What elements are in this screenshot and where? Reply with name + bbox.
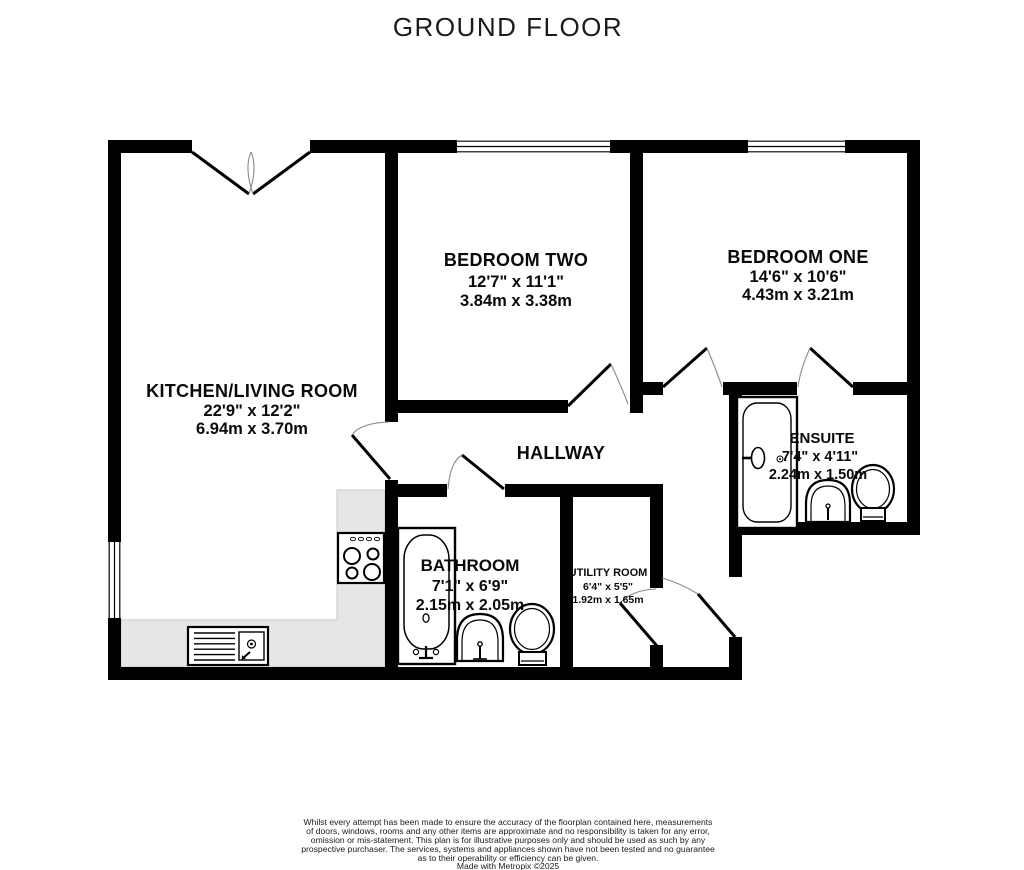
wall [853, 382, 907, 395]
bedroom-one-door [663, 348, 722, 387]
sink-icon [457, 614, 503, 661]
wall [729, 637, 742, 667]
bathroom-door [448, 455, 504, 489]
floorplan-drawing: GROUND FLOOR [0, 0, 1024, 870]
room-label-bedroom-two: BEDROOM TWO [444, 250, 588, 270]
window [108, 542, 121, 618]
hob-burner [364, 564, 380, 580]
room-dims-imperial: 22'9" x 12'2" [204, 402, 301, 420]
room-dims-metric: 2.15m x 2.05m [416, 597, 525, 614]
door-swing-arc [352, 422, 389, 435]
bathtub-icon [398, 528, 455, 664]
door-leaf [352, 435, 390, 479]
door-leaf [810, 348, 853, 387]
door-swing-arc [707, 348, 722, 387]
french-doors [192, 152, 310, 194]
room-dims-imperial: 6'4" x 5'5" [583, 581, 633, 593]
room-dims-metric: 6.94m x 3.70m [196, 420, 308, 438]
room-dims-metric: 1.92m x 1.65m [572, 594, 643, 606]
hob-burner [344, 548, 360, 564]
door-swing-arc [798, 348, 810, 387]
window [457, 140, 610, 153]
room-dims-metric: 4.43m x 3.21m [742, 286, 854, 304]
door-leaf [663, 348, 707, 387]
floorplan-page: GROUND FLOOR [0, 0, 1024, 870]
bedroom-two-door [568, 364, 628, 406]
door-leaf [698, 594, 735, 637]
hob-icon [338, 533, 384, 583]
wall [643, 382, 663, 395]
hob-burner [368, 549, 379, 560]
wall [385, 480, 398, 667]
hob-burner [347, 568, 358, 579]
room-label-ensuite: ENSUITE [789, 430, 854, 447]
door-leaf [568, 364, 611, 406]
wall [385, 153, 398, 422]
sink-icon [806, 480, 850, 522]
footer-disclaimer: Whilst every attempt has been made to en… [301, 817, 715, 870]
room-label-bedroom-one: BEDROOM ONE [727, 247, 868, 267]
door-leaf [192, 152, 249, 194]
door-leaf [462, 455, 504, 489]
wall [310, 140, 457, 153]
wall [729, 535, 742, 577]
toilet-cistern [861, 508, 885, 521]
kitchen-door [352, 422, 390, 479]
entrance-door [662, 578, 735, 637]
ensuite-door [798, 348, 853, 387]
shower-head [752, 448, 765, 469]
toilet-cistern [519, 652, 546, 665]
room-label-kitchen-living: KITCHEN/LIVING ROOM [146, 381, 358, 401]
door-swing-arc [448, 455, 462, 489]
disclaimer-credit: Made with Metropix ©2025 [457, 861, 560, 870]
wall [108, 667, 742, 680]
wall [610, 140, 748, 153]
door-swing-arc [662, 578, 698, 594]
door-leaf [253, 152, 310, 194]
room-dims-imperial: 7'1" x 6'9" [432, 578, 508, 595]
room-dims-imperial: 7'4" x 4'11" [782, 449, 858, 465]
room-dims-imperial: 14'6" x 10'6" [750, 268, 847, 286]
door-swing-arc [611, 364, 628, 404]
room-dims-metric: 2.24m x 1.50m [769, 467, 867, 483]
wall [630, 400, 643, 413]
room-label-hallway: HALLWAY [517, 443, 605, 463]
room-label-bathroom: BATHROOM [421, 556, 520, 575]
wall [650, 645, 663, 667]
shower-drain-dot [779, 458, 781, 460]
wall [393, 400, 568, 413]
door-leaf [620, 603, 657, 646]
window [748, 140, 845, 153]
wall [907, 140, 920, 535]
kitchen-sink-icon [188, 627, 268, 665]
bath-tap-knob [413, 649, 418, 654]
bath-tap-knob [433, 649, 438, 654]
wall [560, 497, 573, 667]
sink-drain-dot [250, 643, 253, 646]
room-label-utility: UTILITY ROOM [569, 567, 648, 579]
wall [108, 140, 121, 542]
wall [650, 497, 663, 588]
door-swing-arc [248, 152, 253, 194]
room-dims-metric: 3.84m x 3.38m [460, 292, 572, 310]
page-title: GROUND FLOOR [393, 12, 623, 42]
wall [385, 484, 447, 497]
wall [630, 153, 643, 405]
room-dims-imperial: 12'7" x 11'1" [468, 273, 564, 291]
wall [723, 382, 797, 395]
wall [505, 484, 663, 497]
